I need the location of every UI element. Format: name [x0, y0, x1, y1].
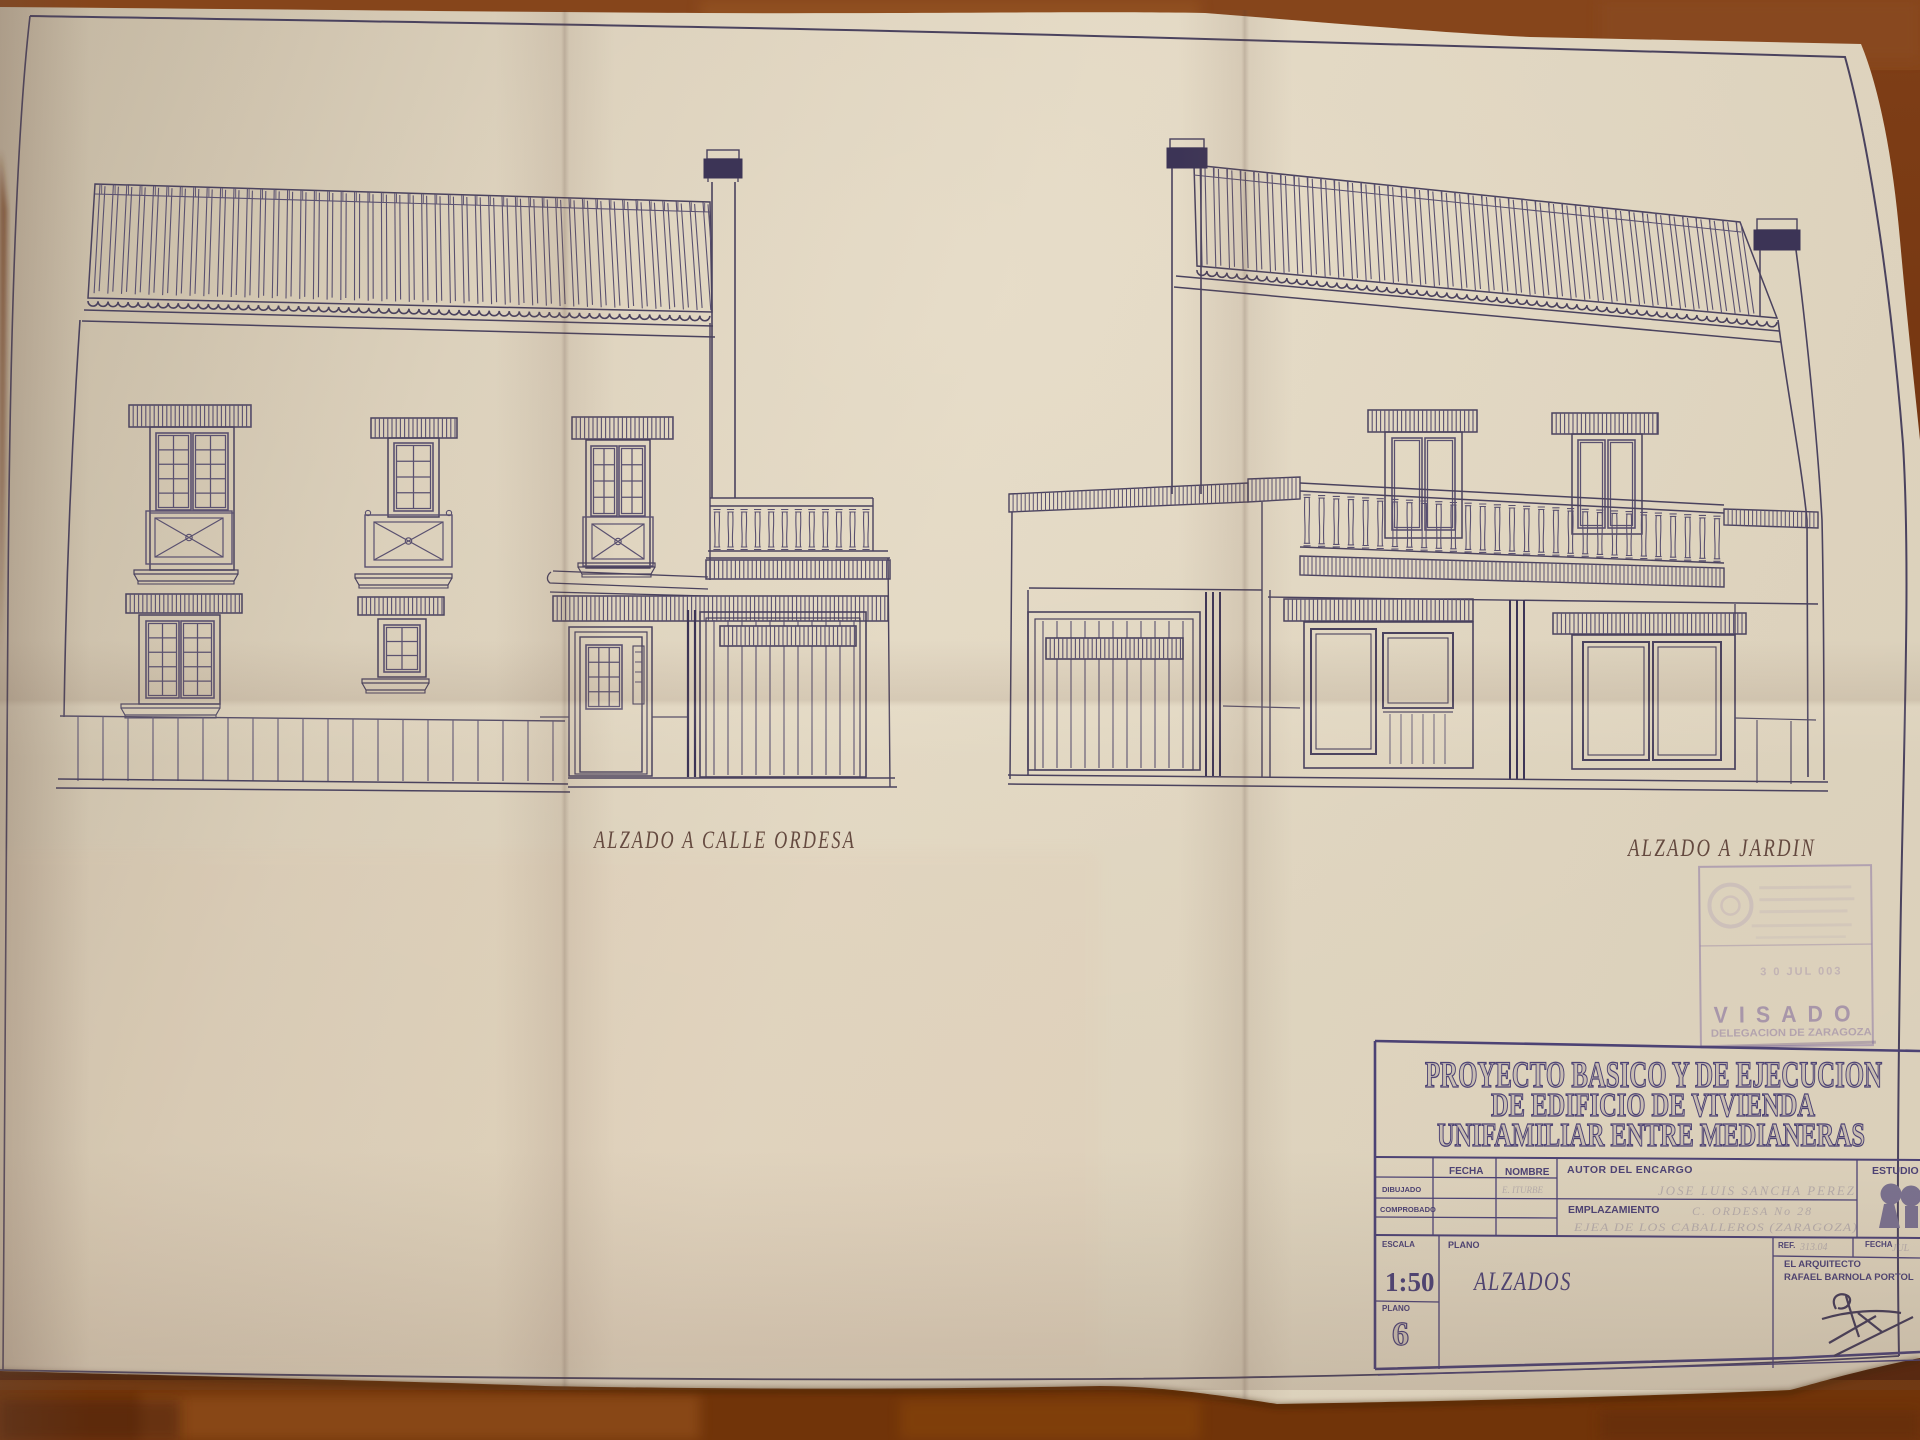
svg-text:ALZADO A JARDIN: ALZADO A JARDIN [1627, 835, 1816, 862]
svg-text:DELEGACION DE ZARAGOZA: DELEGACION DE ZARAGOZA [1711, 1026, 1873, 1040]
svg-text:ALZADO A CALLE ORDESA: ALZADO A CALLE ORDESA [593, 827, 856, 854]
svg-text:UNIFAMILIAR ENTRE MEDIANERAS: UNIFAMILIAR ENTRE MEDIANERAS [1437, 1117, 1865, 1154]
svg-text:VISADO: VISADO [1713, 1000, 1861, 1028]
svg-text:3 0 JUL 003: 3 0 JUL 003 [1760, 965, 1842, 978]
